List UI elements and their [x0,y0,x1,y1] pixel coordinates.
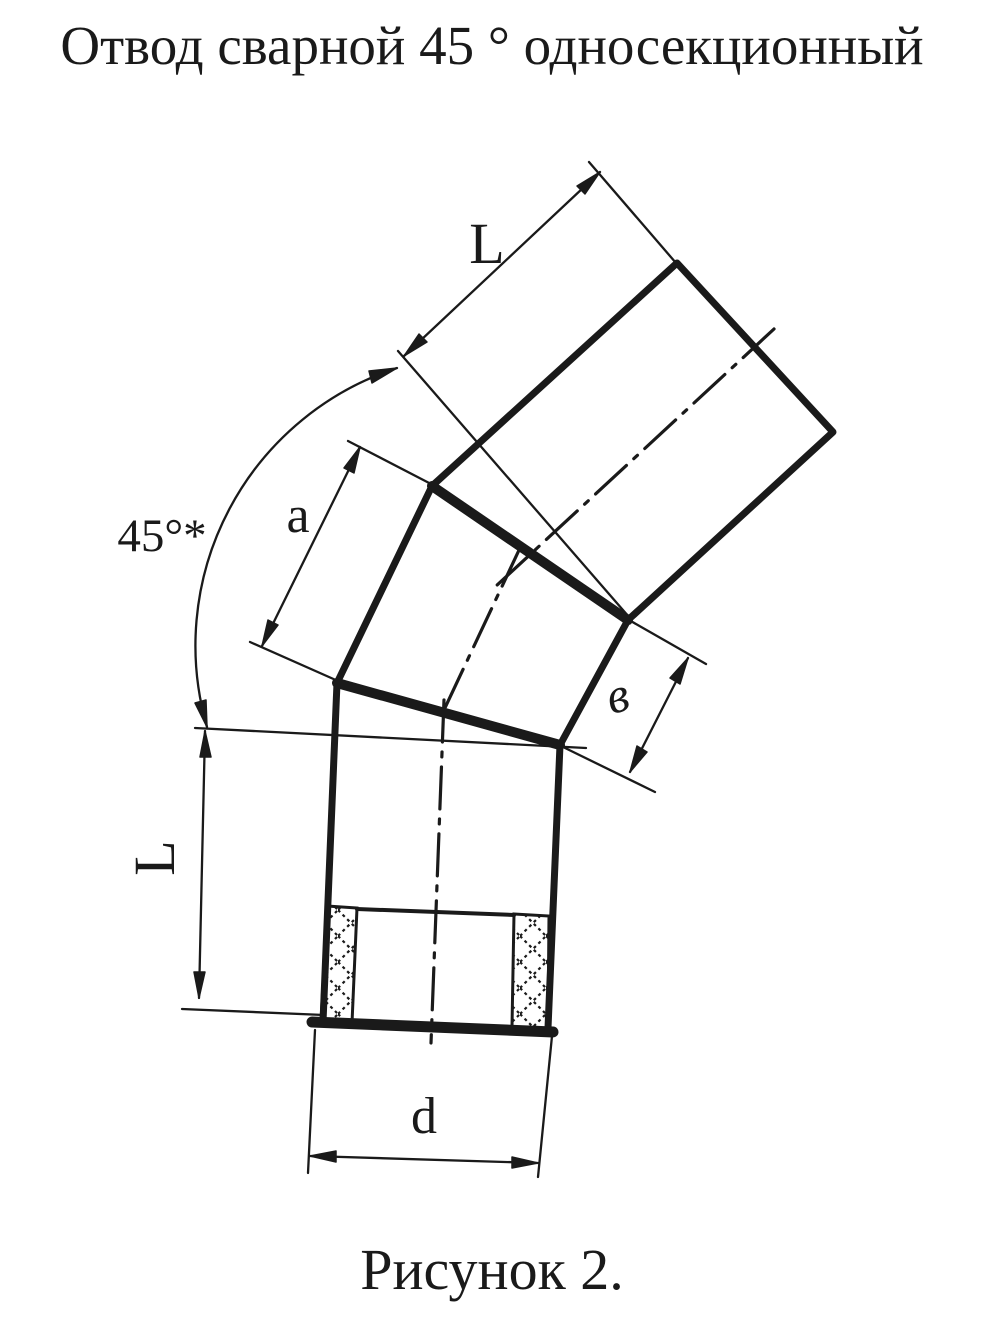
arrowhead [200,731,211,757]
dim-length-lower: L [122,731,324,1015]
backing-strip-left [321,906,357,1023]
dim-diameter: d [308,1030,552,1177]
arrowhead [369,368,397,383]
arrowhead [670,658,688,684]
arrowhead [344,447,360,473]
label-inner-side: в [599,665,634,725]
arrowhead [310,1151,336,1162]
pipe-upper-outline [432,263,833,620]
extension-line [308,1030,315,1173]
arrowhead [195,700,207,727]
extension-line [629,620,706,664]
label-angle: 45°* [117,510,206,562]
arrowhead [630,746,647,772]
dimension-line [199,731,205,998]
centerline-upper [495,329,774,587]
label-length-upper: L [469,211,504,276]
label-length-lower: L [122,840,187,875]
arrowhead [512,1157,538,1168]
figure-caption: Рисунок 2. [0,1236,984,1303]
dim-segment-a: a [250,441,433,681]
label-segment-a: a [286,487,309,544]
backing-strip-right [512,914,549,1029]
extension-line [250,642,338,681]
label-diameter: d [411,1088,437,1145]
dimension-line [310,1156,538,1163]
angle-arc [195,368,397,727]
centerline-lower [431,700,444,1043]
centerline-middle [444,548,520,710]
extension-line [182,1009,324,1015]
weld-seam-lower [337,683,560,745]
pipe-upper-section [432,263,833,620]
arrowhead [194,972,205,998]
elbow-drawing: L 45°* a в [0,0,984,1317]
extension-line [589,162,676,263]
extension-line [538,1036,552,1177]
arrowhead [262,620,278,646]
dimension-line [262,447,360,646]
scanned-drawing-page: Отвод сварной 45 ° односекционный [0,0,984,1317]
